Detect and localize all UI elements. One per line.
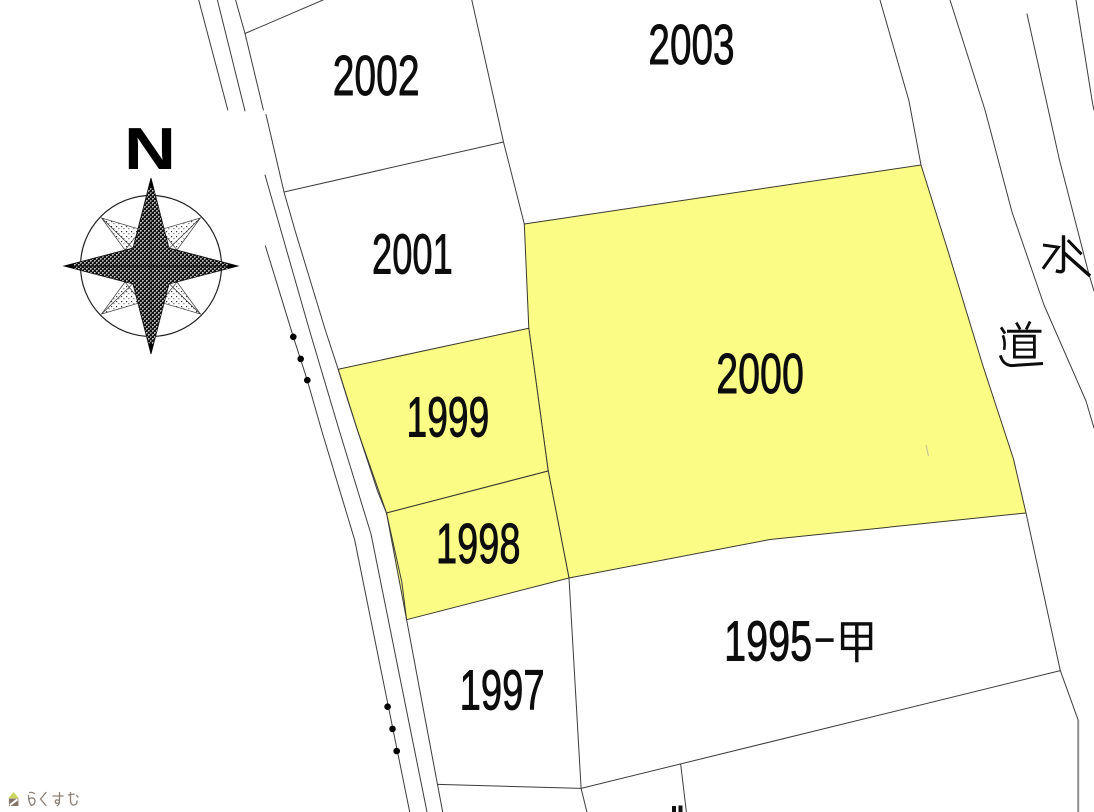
svg-text:1998: 1998 — [436, 512, 521, 576]
svg-text:1997: 1997 — [460, 659, 545, 723]
svg-text:2000: 2000 — [716, 342, 804, 406]
svg-text:2001: 2001 — [372, 223, 453, 287]
svg-text:1995: 1995 — [724, 609, 812, 673]
svg-text:1999: 1999 — [407, 386, 490, 450]
svg-text:N: N — [124, 116, 176, 182]
svg-text:2002: 2002 — [333, 44, 420, 108]
svg-text:2003: 2003 — [648, 13, 734, 77]
